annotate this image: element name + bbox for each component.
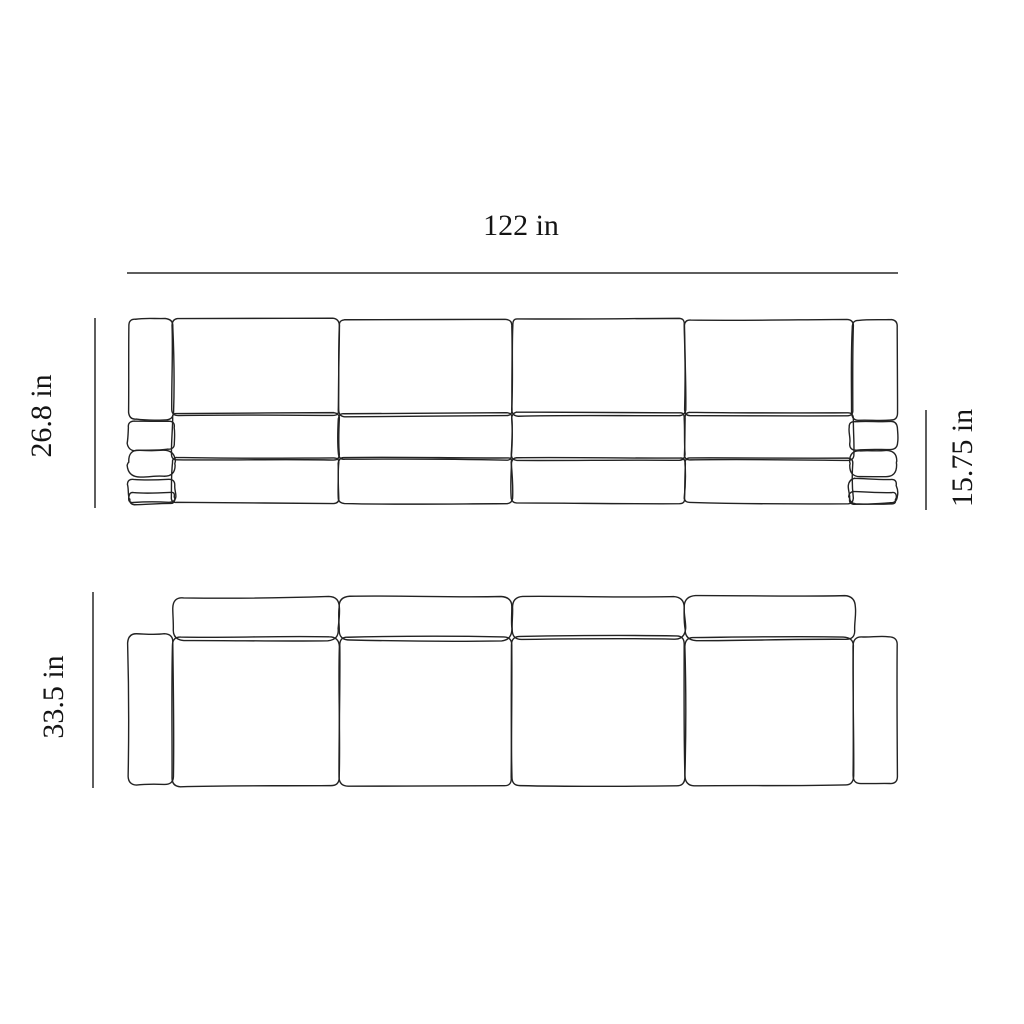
sofa-line-drawing bbox=[0, 0, 1024, 1024]
sofa-front-view bbox=[127, 318, 898, 505]
sofa-top-view bbox=[128, 596, 898, 787]
sofa-dimension-diagram: 122 in 26.8 in 15.75 in 33.5 in bbox=[0, 0, 1024, 1024]
